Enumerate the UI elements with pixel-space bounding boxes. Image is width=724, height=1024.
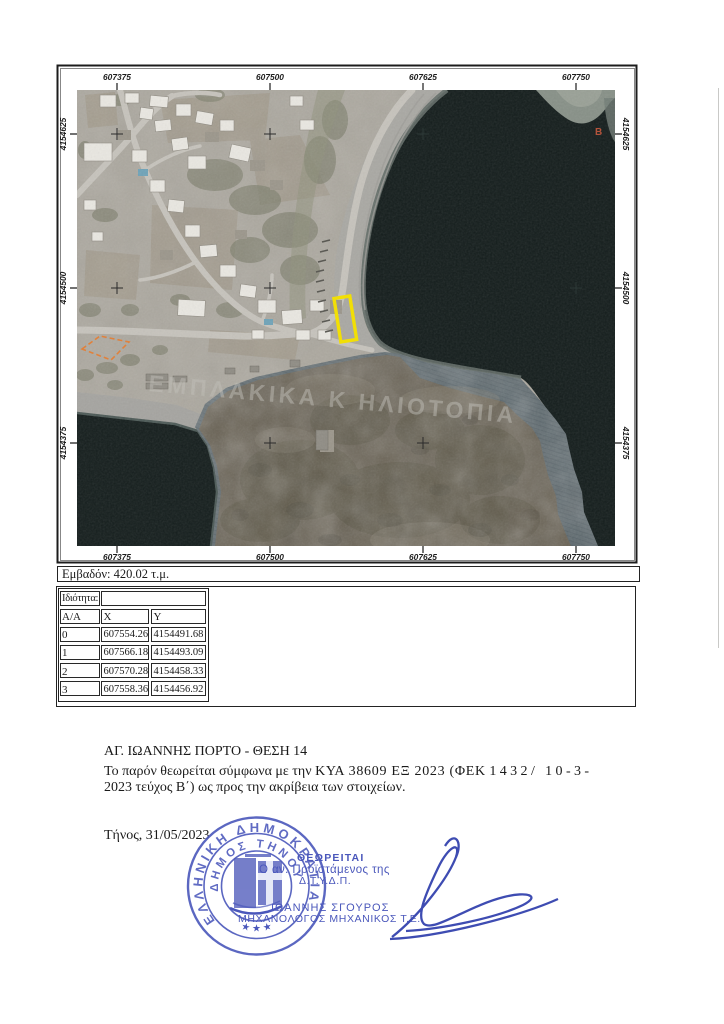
svg-text:Β: Β <box>595 127 602 138</box>
svg-text:4154375: 4154375 <box>621 426 631 460</box>
svg-text:4154625: 4154625 <box>621 117 631 151</box>
svg-text:607500: 607500 <box>256 72 284 82</box>
svg-text:607625: 607625 <box>409 72 437 82</box>
svg-text:607375: 607375 <box>103 72 131 82</box>
svg-text:607750: 607750 <box>562 552 590 562</box>
svg-text:Δ.Τ.Υ.Δ.Π.: Δ.Τ.Υ.Δ.Π. <box>299 875 351 887</box>
svg-text:4154625: 4154625 <box>58 117 68 151</box>
svg-text:4154375: 4154375 <box>58 426 68 460</box>
svg-text:4154500: 4154500 <box>621 271 631 305</box>
svg-text:ΘΕΩΡΕΙΤΑΙ: ΘΕΩΡΕΙΤΑΙ <box>297 852 364 864</box>
svg-text:607375: 607375 <box>103 552 131 562</box>
svg-text:4154500: 4154500 <box>58 271 68 305</box>
svg-text:607500: 607500 <box>256 552 284 562</box>
svg-text:607625: 607625 <box>409 552 437 562</box>
svg-text:ΜΗΧΑΝΟΛΟΓΟΣ ΜΗΧΑΝΙΚΟΣ Τ.Ε.: ΜΗΧΑΝΟΛΟΓΟΣ ΜΗΧΑΝΙΚΟΣ Τ.Ε. <box>238 913 421 925</box>
svg-text:607750: 607750 <box>562 72 590 82</box>
